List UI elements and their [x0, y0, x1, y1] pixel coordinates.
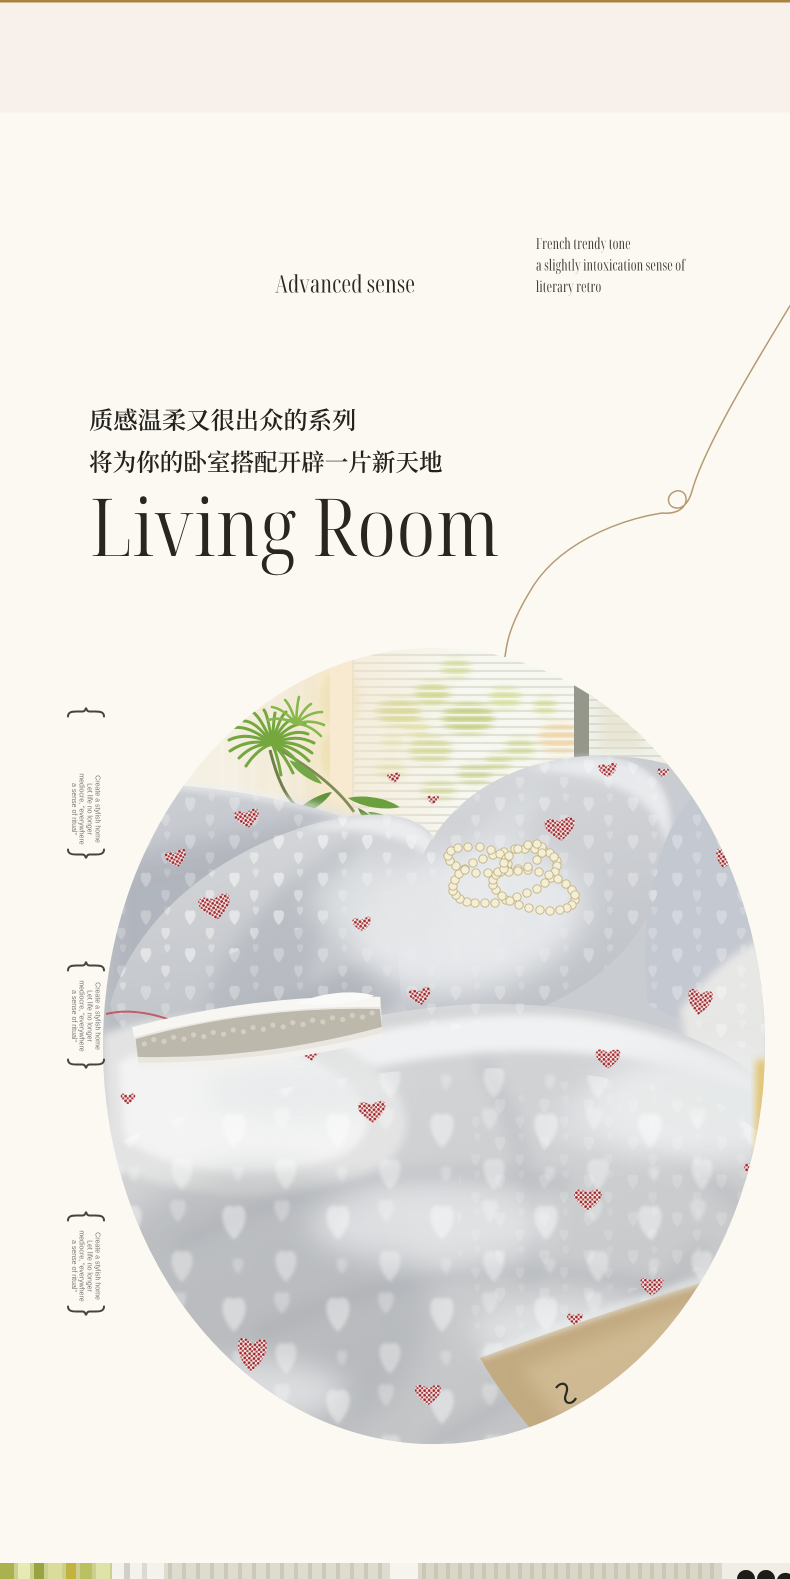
svg-text:Create a stylish homeLet life: Create a stylish homeLet life no longerm…	[70, 773, 100, 844]
svg-text:Create a stylish homeLet life: Create a stylish homeLet life no longerm…	[70, 1230, 100, 1301]
svg-text:Create a stylish homeLet life: Create a stylish homeLet life no longerm…	[70, 980, 100, 1051]
